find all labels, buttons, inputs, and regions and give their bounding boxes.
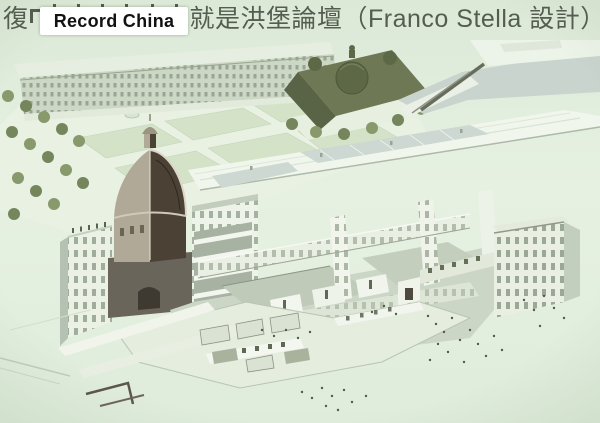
photo-vignette [0,0,600,423]
watermark-label: Record China [54,11,175,32]
headline-prefix: 復 [3,3,29,35]
headline-suffix: 就是洪堡論壇（Franco Stella 設計） [190,3,600,35]
architectural-rendering [0,0,600,423]
watermark-record-china: Record China [40,7,188,35]
